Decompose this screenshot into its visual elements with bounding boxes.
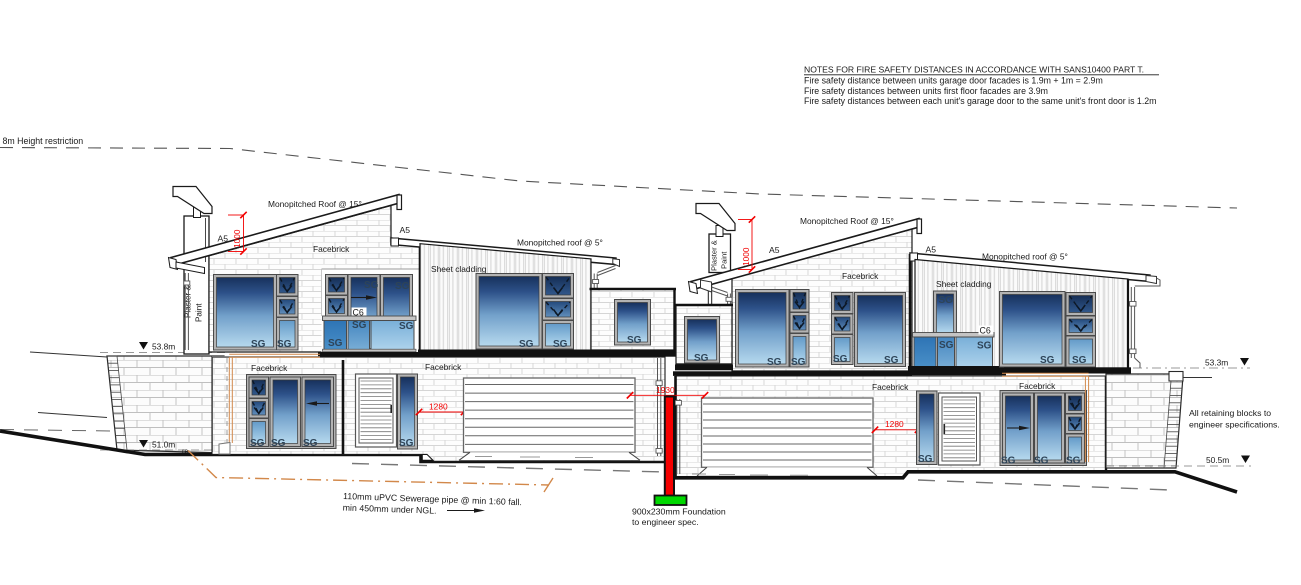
svg-text:Facebrick: Facebrick [251, 363, 288, 373]
svg-text:51.0m: 51.0m [152, 440, 175, 450]
svg-text:SG: SG [1066, 456, 1081, 467]
svg-text:SG: SG [553, 339, 568, 350]
svg-text:50.5m: 50.5m [1206, 455, 1229, 465]
svg-text:engineer specifications.: engineer specifications. [1189, 420, 1280, 430]
svg-text:A5: A5 [926, 245, 937, 255]
svg-text:A5: A5 [769, 245, 780, 255]
svg-text:Fire safety distance between u: Fire safety distance between units garag… [804, 76, 1103, 86]
svg-text:1280: 1280 [885, 419, 904, 429]
svg-text:SG: SG [977, 341, 992, 352]
svg-text:SG: SG [1072, 355, 1087, 366]
svg-text:SG: SG [271, 438, 286, 449]
svg-text:900x230mm Foundation: 900x230mm Foundation [632, 507, 726, 517]
svg-text:Facebrick: Facebrick [1019, 381, 1056, 391]
svg-text:SG: SG [791, 357, 806, 368]
svg-text:SG: SG [250, 438, 265, 449]
svg-text:SG: SG [303, 438, 318, 449]
svg-text:SG: SG [352, 320, 367, 331]
svg-text:Monopitched roof @ 5°: Monopitched roof @ 5° [517, 238, 603, 248]
svg-text:SG: SG [519, 339, 534, 350]
svg-text:SG: SG [627, 335, 642, 346]
svg-text:Monopitched Roof @ 15°: Monopitched Roof @ 15° [800, 216, 894, 226]
svg-text:SG: SG [1040, 355, 1055, 366]
svg-text:Paint: Paint [195, 303, 204, 322]
svg-text:Fire safety distances between: Fire safety distances between units firs… [804, 86, 1048, 96]
svg-text:SG: SG [767, 357, 782, 368]
svg-text:SG: SG [939, 295, 954, 306]
svg-text:Facebrick: Facebrick [425, 362, 462, 372]
svg-text:SG: SG [399, 321, 414, 332]
svg-text:A5: A5 [218, 234, 229, 244]
svg-text:to engineer spec.: to engineer spec. [632, 517, 699, 527]
svg-text:1000: 1000 [741, 247, 751, 266]
svg-text:Facebrick: Facebrick [842, 271, 879, 281]
svg-text:SG: SG [833, 354, 848, 365]
svg-text:All retaining blocks to: All retaining blocks to [1189, 408, 1271, 418]
svg-text:1280: 1280 [429, 402, 448, 412]
svg-text:Facebrick: Facebrick [313, 244, 350, 254]
svg-text:53.3m: 53.3m [1205, 358, 1228, 368]
svg-text:SG: SG [399, 438, 414, 449]
svg-text:Plaster &: Plaster & [710, 240, 719, 271]
svg-text:1000: 1000 [232, 229, 242, 248]
svg-text:C6: C6 [980, 326, 991, 336]
svg-text:A5: A5 [400, 225, 411, 235]
svg-text:1930: 1930 [656, 385, 675, 395]
svg-text:SG: SG [364, 280, 379, 291]
svg-text:Sheet cladding: Sheet cladding [431, 264, 487, 274]
svg-text:Paint: Paint [720, 251, 729, 269]
svg-text:8m Height restriction: 8m Height restriction [3, 136, 84, 146]
svg-text:Fire safety distances between: Fire safety distances between each unit'… [804, 96, 1157, 106]
svg-text:SG: SG [1001, 456, 1016, 467]
svg-text:SG: SG [277, 339, 292, 350]
svg-text:SG: SG [328, 338, 343, 349]
svg-text:Facebrick: Facebrick [872, 382, 909, 392]
svg-text:Monopitched Roof @ 15°: Monopitched Roof @ 15° [268, 199, 362, 209]
svg-text:SG: SG [395, 281, 410, 292]
svg-text:Monopitched roof @ 5°: Monopitched roof @ 5° [982, 252, 1068, 262]
svg-text:NOTES FOR FIRE SAFETY DISTANCE: NOTES FOR FIRE SAFETY DISTANCES IN ACCOR… [804, 65, 1144, 75]
svg-text:SG: SG [251, 339, 266, 350]
svg-text:SG: SG [918, 454, 933, 465]
svg-text:SG: SG [884, 355, 899, 366]
svg-text:SG: SG [1034, 456, 1049, 467]
svg-text:SG: SG [694, 353, 709, 364]
svg-text:53.8m: 53.8m [152, 342, 175, 352]
svg-text:SG: SG [939, 340, 954, 351]
svg-text:Sheet cladding: Sheet cladding [936, 279, 992, 289]
